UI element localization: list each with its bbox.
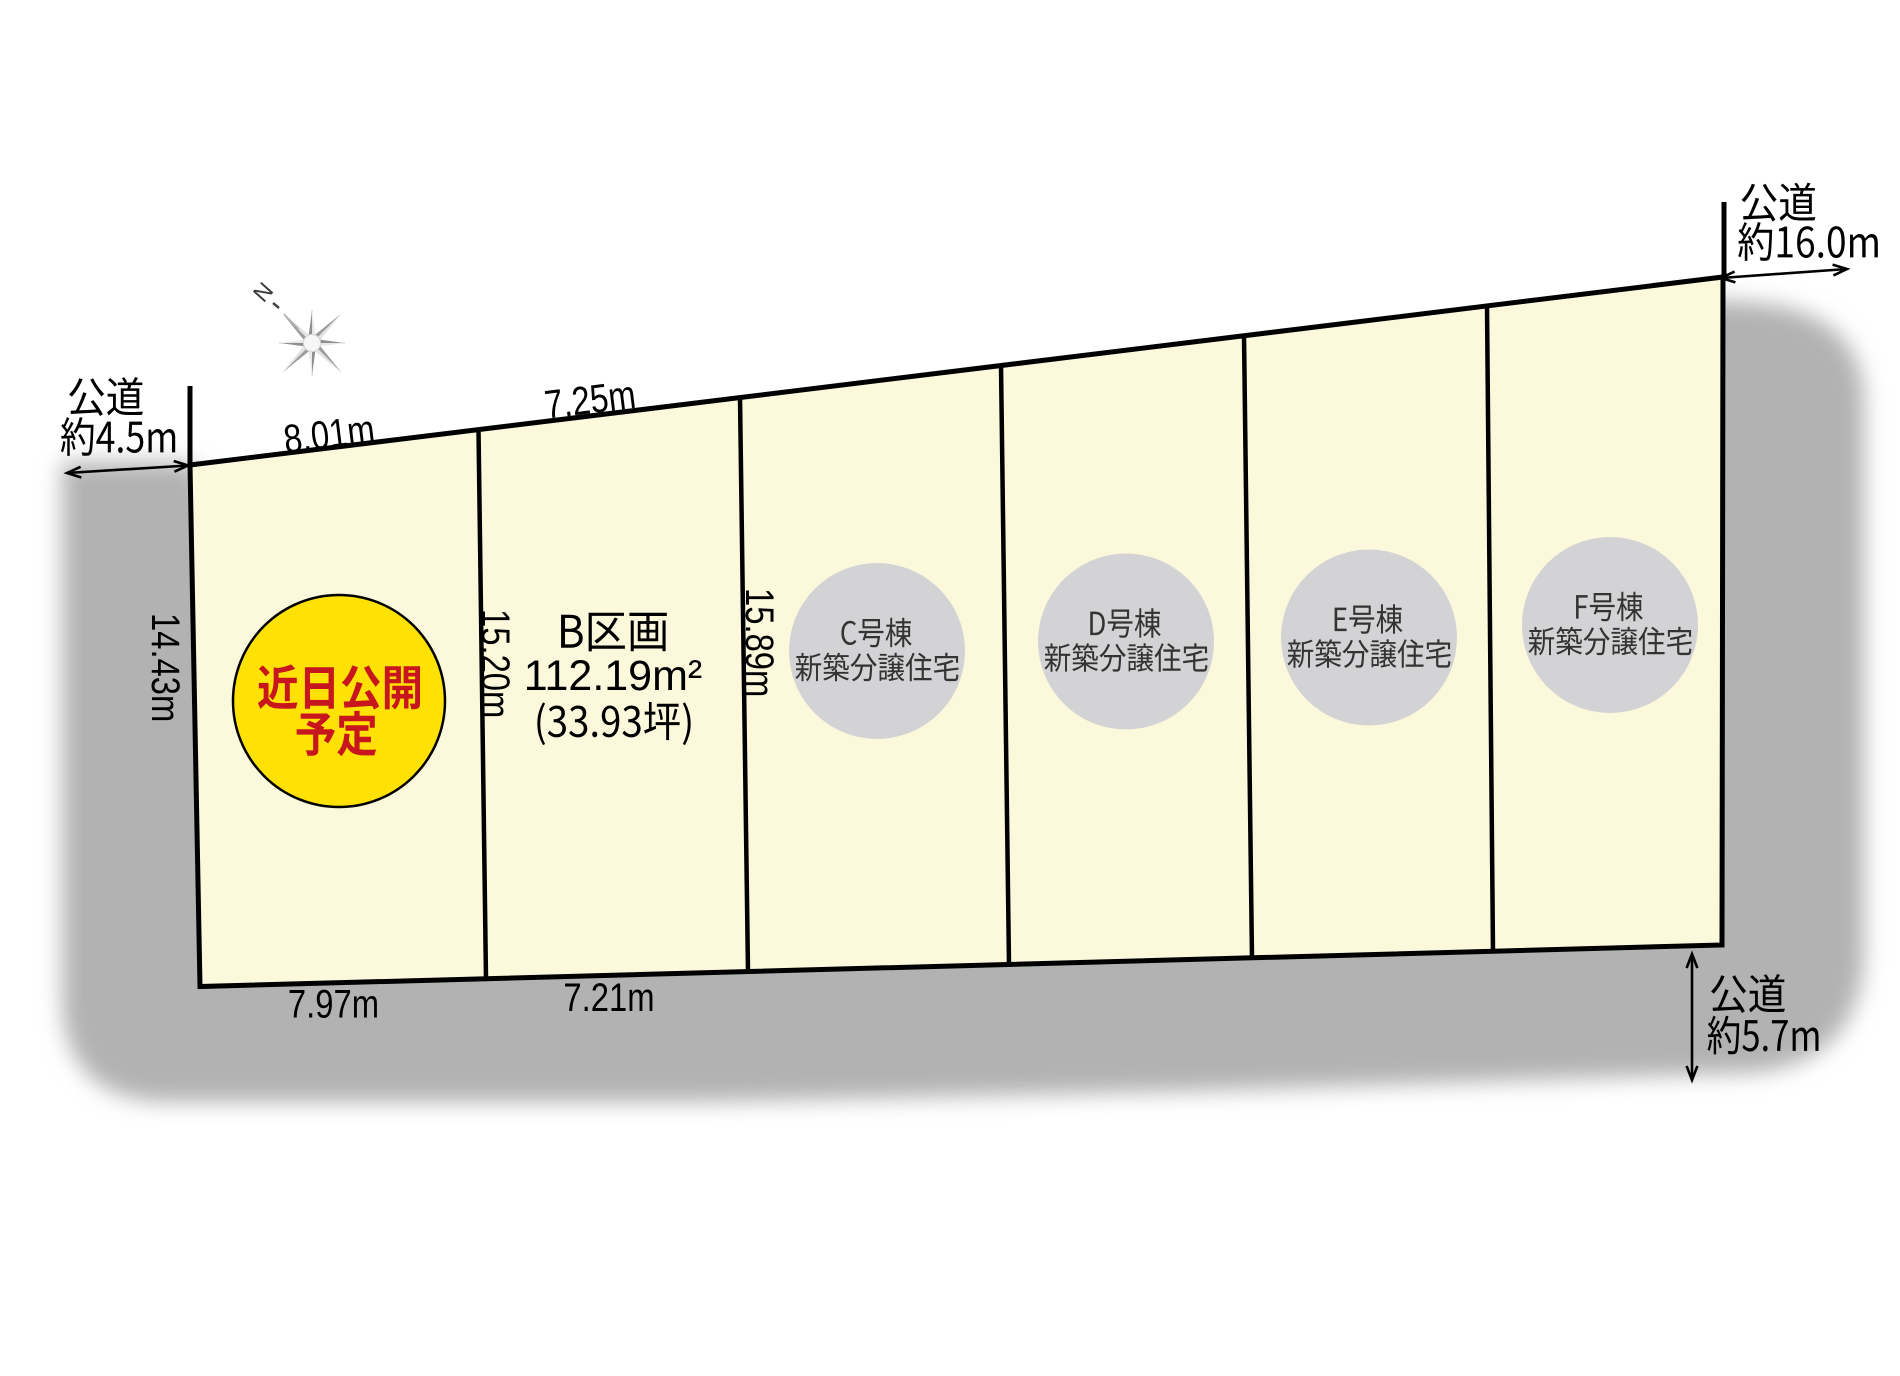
- svg-text:15.89m: 15.89m: [737, 588, 782, 697]
- svg-text:7.97m: 7.97m: [288, 982, 379, 1027]
- svg-text:112.19m²: 112.19m²: [524, 652, 702, 700]
- svg-text:14.43m: 14.43m: [143, 613, 188, 722]
- svg-text:7.21m: 7.21m: [563, 975, 654, 1020]
- svg-text:15.20m: 15.20m: [473, 609, 518, 718]
